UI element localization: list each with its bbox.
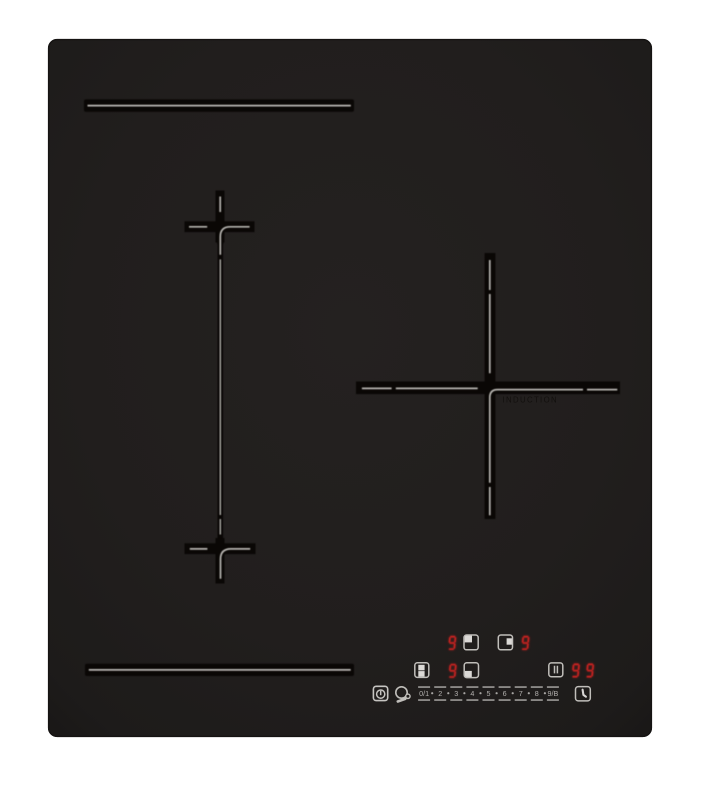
svg-text:7: 7 (519, 689, 523, 698)
svg-text:INDUCTION: INDUCTION (503, 395, 558, 404)
svg-text:8: 8 (535, 689, 539, 698)
svg-text:5: 5 (487, 689, 491, 698)
svg-text:4: 4 (470, 689, 474, 698)
svg-text:9/B: 9/B (548, 689, 559, 698)
svg-text:3: 3 (454, 689, 458, 698)
svg-text:6: 6 (503, 689, 507, 698)
svg-text:2: 2 (438, 689, 442, 698)
svg-text:0/1: 0/1 (419, 689, 429, 698)
